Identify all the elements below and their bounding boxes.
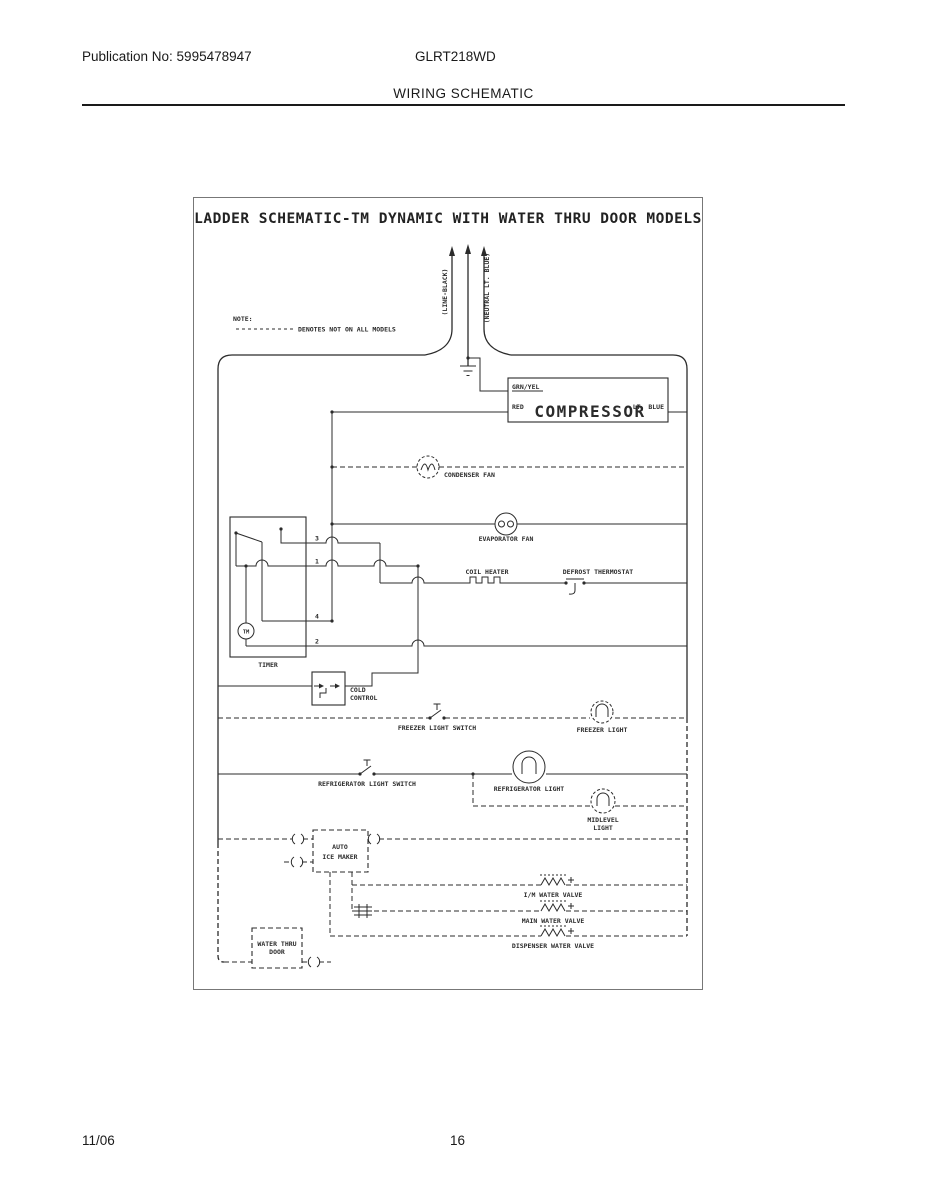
timer-motor-wires — [246, 566, 306, 646]
cold-control-box — [312, 672, 345, 705]
refrigerator-switch-icon — [360, 760, 371, 774]
evaporator-fan-row: EVAPORATOR FAN — [332, 513, 687, 543]
valve-coil-icon — [541, 878, 565, 885]
contact-arrow-icon — [319, 684, 324, 689]
neutral-label: (NEUTRAL LT. BLUE) — [483, 253, 491, 323]
line-black-label: (LINE-BLACK) — [441, 269, 449, 316]
note-label: NOTE: — [233, 315, 253, 323]
section-title: WIRING SCHEMATIC — [0, 86, 927, 101]
defrost-contact-wire — [281, 529, 306, 543]
terminal-3: 3 — [315, 535, 319, 543]
compressor-label: COMPRESSOR — [534, 402, 645, 421]
valve-plus — [568, 903, 574, 909]
condenser-fan-icon — [417, 456, 439, 478]
ice-maker-label-2: ICE MAKER — [322, 853, 357, 861]
top-rail-left — [218, 355, 425, 369]
connector-icon — [368, 834, 379, 844]
left-rail-dashed — [218, 843, 224, 962]
model-number: GLRT218WD — [415, 49, 496, 64]
evaporator-fan-label: EVAPORATOR FAN — [479, 535, 534, 543]
defrost-thermostat-label: DEFROST THERMOSTAT — [563, 568, 634, 576]
im-water-valve-row: I/M WATER VALVE — [352, 875, 687, 899]
midlevel-light-label-2: LIGHT — [593, 824, 613, 832]
terminal-1: 1 — [315, 558, 319, 566]
schematic-frame: LADDER SCHEMATIC-TM DYNAMIC WITH WATER T… — [193, 197, 703, 990]
heater-element-icon — [467, 577, 503, 583]
power-supply-leads: (LINE-BLACK) (NEUTRAL LT. BLUE) — [425, 244, 511, 391]
defrost-row-wire-left — [380, 577, 467, 583]
manual-page: Publication No: 5995478947 GLRT218WD WIR… — [0, 0, 927, 1200]
connector-icon — [292, 834, 303, 844]
common-wire — [236, 533, 306, 566]
timer-label: TIMER — [258, 661, 278, 669]
dispenser-water-valve-label: DISPENSER WATER VALVE — [512, 942, 594, 950]
freezer-light-switch-label: FREEZER LIGHT SWITCH — [398, 724, 476, 732]
connector-icon — [291, 857, 302, 867]
main-water-valve-label: MAIN WATER VALVE — [522, 917, 585, 925]
ice-maker-row: AUTO ICE MAKER — [218, 830, 687, 936]
condenser-fan-row: CONDENSER FAN — [332, 456, 687, 479]
cold-control-label-1: COLD — [350, 686, 366, 694]
im-water-valve-label: I/M WATER VALVE — [524, 891, 583, 899]
water-thru-door-label-2: DOOR — [269, 948, 285, 956]
refrigerator-light-label: REFRIGERATOR LIGHT — [494, 785, 565, 793]
coil-heater-label: COIL HEATER — [465, 568, 508, 576]
freezer-light-row: FREEZER LIGHT SWITCH FREEZER LIGHT — [218, 701, 687, 734]
lt-blue-label: LT. BLUE — [633, 403, 664, 411]
thermostat-pigtail — [569, 583, 575, 594]
ground-icon — [460, 366, 476, 376]
terminal1-wire — [306, 560, 418, 566]
run-contact-wire — [262, 542, 306, 621]
ice-maker-box — [313, 830, 368, 872]
defrost-timer: TIMER TM 3 1 4 2 — [230, 517, 687, 669]
footer-date: 11/06 — [82, 1133, 115, 1148]
refrigerator-light-row: REFRIGERATOR LIGHT SWITCH REFRIGERATOR L… — [218, 751, 687, 832]
arrow-up-icon — [449, 246, 455, 256]
valve-coil-icon — [541, 929, 565, 936]
main-water-valve-row: MAIN WATER VALVE — [352, 901, 687, 925]
condenser-fan-label: CONDENSER FAN — [444, 471, 495, 479]
ladder-rails — [218, 355, 687, 962]
compressor: GRN/YEL RED COMPRESSOR LT. BLUE — [332, 378, 687, 422]
water-thru-door-label-1: WATER THRU — [257, 940, 296, 948]
dispenser-water-valve-row: DISPENSER WATER VALVE — [330, 926, 687, 950]
motor-winding-icon — [499, 521, 505, 527]
header-rule — [82, 104, 845, 106]
cold-control-label-2: CONTROL — [350, 694, 377, 702]
contact-arrow-icon — [335, 684, 340, 689]
terminal-2: 2 — [315, 638, 319, 646]
motor-winding-icon — [508, 521, 514, 527]
valve-coil-icon — [541, 904, 565, 911]
cold-control-to-timer-wire — [345, 566, 418, 686]
timer-motor-label: TM — [243, 630, 250, 636]
grn-yel-label: GRN/YEL — [512, 383, 539, 391]
ice-maker-label-1: AUTO — [332, 843, 348, 851]
junction-dot — [330, 410, 333, 413]
terminal-4: 4 — [315, 613, 319, 621]
connector-icon — [308, 957, 319, 967]
freezer-light-label: FREEZER LIGHT — [577, 726, 628, 734]
switch-arm — [236, 533, 262, 542]
defrost-row: COIL HEATER DEFROST THERMOSTAT — [380, 568, 687, 594]
red-label: RED — [512, 403, 524, 411]
footer-page-number: 16 — [450, 1133, 465, 1148]
terminal2-wire — [306, 640, 687, 646]
contact-dot — [372, 772, 375, 775]
note-text: DENOTES NOT ON ALL MODELS — [298, 326, 396, 334]
wiring-schematic-svg: NOTE: DENOTES NOT ON ALL MODELS (LINE-BL… — [193, 197, 703, 990]
contact-dot — [442, 716, 445, 719]
freezer-switch-icon — [430, 704, 441, 718]
valve-plus — [568, 928, 574, 934]
cold-control-sensor-glyph — [320, 688, 326, 698]
multi-pin-connector-icon — [354, 904, 372, 918]
water-thru-door: WATER THRU DOOR — [224, 928, 331, 968]
midlevel-light-label-1: MIDLEVEL — [587, 816, 618, 824]
arrow-up-icon — [465, 244, 471, 254]
publication-number: Publication No: 5995478947 — [82, 49, 252, 64]
top-rail-right — [511, 355, 687, 369]
contact-dot — [564, 581, 567, 584]
valve-plus — [568, 877, 574, 883]
refrigerator-light-switch-label: REFRIGERATOR LIGHT SWITCH — [318, 780, 416, 788]
refrigerator-light-icon — [513, 751, 545, 783]
grnyel-feed-wire — [468, 358, 508, 391]
feeder-vertical — [330, 410, 333, 622]
note: NOTE: DENOTES NOT ON ALL MODELS — [233, 315, 396, 334]
